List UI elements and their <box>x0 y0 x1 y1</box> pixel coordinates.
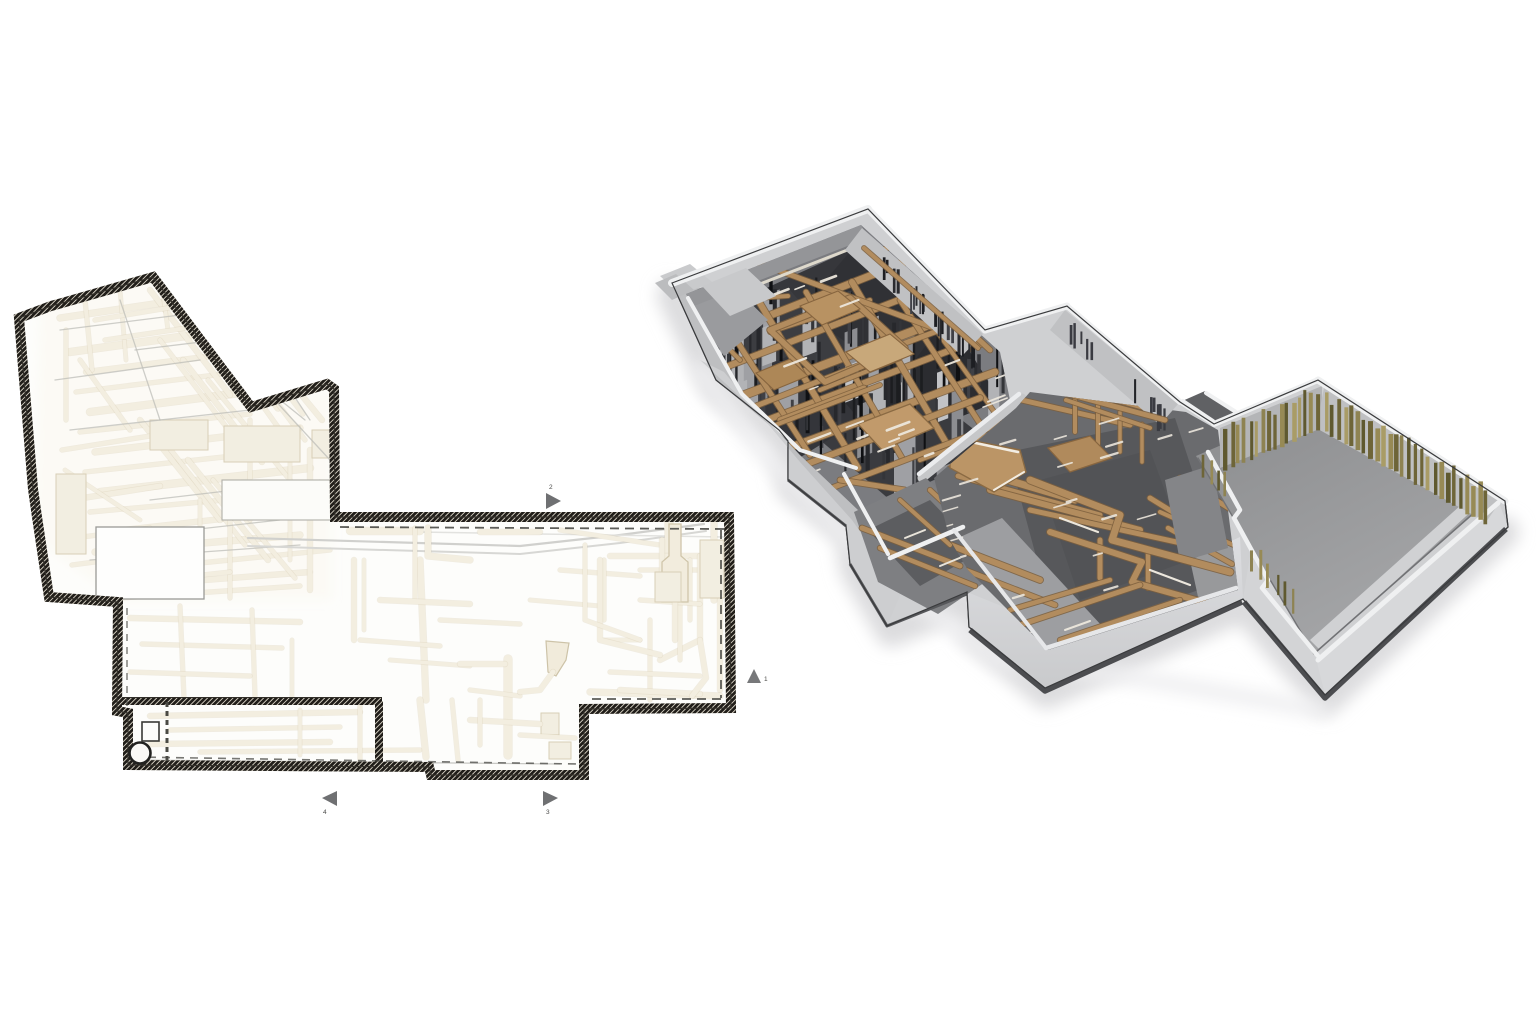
svg-text:2: 2 <box>549 484 553 491</box>
svg-text:4: 4 <box>323 809 327 816</box>
svg-text:3: 3 <box>546 809 550 816</box>
svg-text:1: 1 <box>764 676 768 683</box>
